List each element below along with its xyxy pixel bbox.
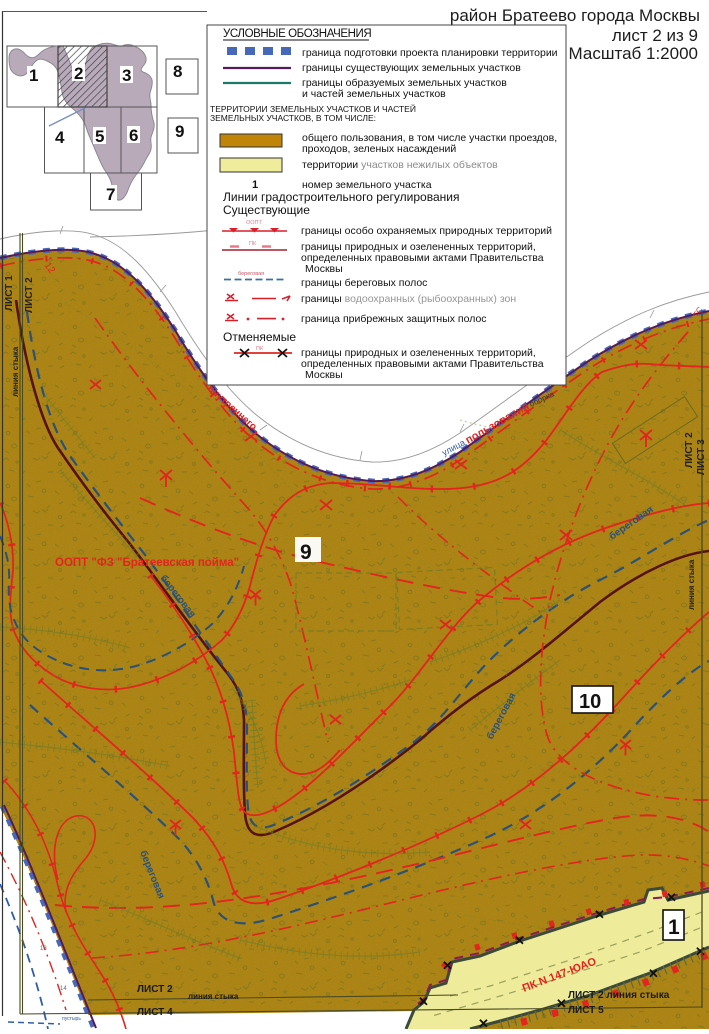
svg-text:10: 10 (579, 691, 601, 713)
svg-text:границы береговых полос: границы береговых полос (301, 277, 427, 289)
svg-text:и частей земельных участков: и частей земельных участков (302, 88, 446, 100)
svg-text:1: 1 (29, 66, 38, 85)
svg-text:границы водоохранных (рыбоохр: границы водоохранных (рыбоохранных) зон (301, 293, 516, 305)
svg-text:УСЛОВНЫЕ ОБОЗНАЧЕНИЯ: УСЛОВНЫЕ ОБОЗНАЧЕНИЯ (223, 28, 371, 40)
svg-text:ЛИСТ 2: ЛИСТ 2 (684, 432, 695, 468)
svg-text:8: 8 (173, 62, 182, 81)
svg-text:границы особо охраняемых приро: границы особо охраняемых природных терри… (301, 225, 552, 237)
svg-text:проходов, зеленых насаждений: проходов, зеленых насаждений (302, 143, 456, 155)
svg-text:ЛИСТ 2: ЛИСТ 2 (137, 984, 173, 995)
svg-text:✕: ✕ (418, 994, 429, 1009)
svg-text:✕: ✕ (514, 933, 525, 948)
svg-text:✕: ✕ (648, 966, 659, 981)
svg-text:9: 9 (300, 541, 312, 564)
svg-text:Москвы: Москвы (305, 369, 343, 381)
svg-text:9: 9 (175, 122, 184, 141)
svg-text:ЛИСТ 1: ЛИСТ 1 (4, 275, 15, 311)
svg-text:Существующие: Существующие (223, 203, 310, 217)
svg-text:Москвы: Москвы (305, 263, 343, 275)
svg-text:линия стыка: линия стыка (687, 559, 696, 610)
svg-text:✕: ✕ (442, 958, 453, 973)
svg-text:ПК: ПК (249, 241, 257, 247)
svg-text:ПК: ПК (256, 346, 264, 352)
svg-text:Отменяемые: Отменяемые (223, 330, 296, 344)
svg-text:линия стыка: линия стыка (188, 992, 239, 1001)
svg-text:Линии градостроительного регул: Линии градостроительного регулирования (223, 190, 459, 204)
svg-text:Масштаб 1:2000: Масштаб 1:2000 (569, 44, 698, 63)
svg-text:территории участков нежилых об: территории участков нежилых объектов (302, 159, 498, 171)
svg-text:6: 6 (129, 126, 138, 145)
svg-text:граница прибрежных защитных по: граница прибрежных защитных полос (301, 313, 487, 325)
svg-text:4: 4 (55, 128, 65, 147)
svg-text:границы существующих земельных: границы существующих земельных участков (302, 62, 521, 74)
svg-text:береговая: береговая (238, 271, 264, 277)
svg-text:линия стыка: линия стыка (11, 346, 20, 397)
svg-text:✕: ✕ (478, 1016, 489, 1029)
svg-text:ЛИСТ 4: ЛИСТ 4 (137, 1007, 173, 1018)
svg-text:лист 2 из 9: лист 2 из 9 (612, 26, 698, 45)
svg-text:3: 3 (122, 66, 131, 85)
svg-text:14: 14 (60, 986, 67, 992)
svg-text:граница подготовки проекта пла: граница подготовки проекта планировки те… (302, 47, 558, 59)
svg-text:✕: ✕ (594, 907, 605, 922)
svg-text:район Братеево города Москвы: район Братеево города Москвы (450, 6, 700, 25)
svg-text:ЛИСТ 3: ЛИСТ 3 (696, 439, 707, 475)
svg-text:ЗЕМЕЛЬНЫХ УЧАСТКОВ, В ТОМ ЧИСЛ: ЗЕМЕЛЬНЫХ УЧАСТКОВ, В ТОМ ЧИСЛЕ: (210, 113, 376, 123)
svg-text:ООПТ "ФЗ "Братеевская пойма": ООПТ "ФЗ "Братеевская пойма" (55, 557, 239, 569)
svg-text:пустырь: пустырь (62, 1016, 81, 1022)
svg-text:ООПТ: ООПТ (246, 220, 263, 226)
svg-text:18: 18 (40, 946, 47, 952)
svg-text:✕: ✕ (666, 890, 677, 905)
svg-text:7: 7 (106, 185, 115, 204)
svg-text:✕: ✕ (695, 944, 706, 959)
svg-text:2: 2 (74, 64, 83, 83)
svg-text:ЛИСТ 2 линия стыка: ЛИСТ 2 линия стыка (568, 990, 670, 1001)
svg-text:ЛИСТ 2: ЛИСТ 2 (24, 277, 35, 313)
svg-text:ЛИСТ 5: ЛИСТ 5 (568, 1005, 604, 1016)
svg-text:1: 1 (668, 916, 680, 939)
svg-text:5: 5 (95, 127, 104, 146)
